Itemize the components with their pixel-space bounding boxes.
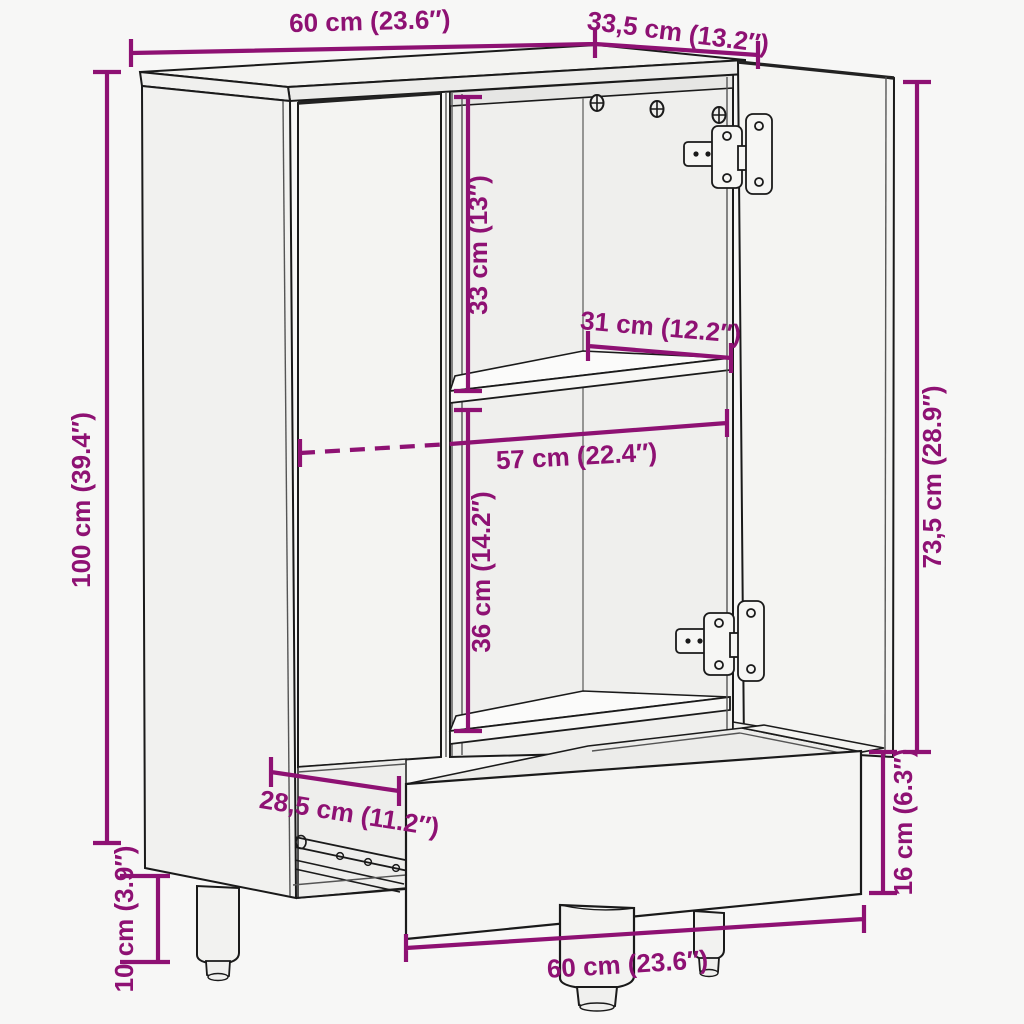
dimension-label: 100 cm (39.4″) [66, 412, 96, 588]
dimension-label: 16 cm (6.3″) [888, 749, 918, 896]
left-door [298, 92, 446, 767]
cabinet-dimension-diagram: 60 cm (23.6″) 33,5 cm (13.2″) 100 cm (39… [0, 0, 1024, 1024]
dimension-label: 73,5 cm (28.9″) [917, 385, 947, 568]
dimension-label: 36 cm (14.2″) [466, 491, 496, 652]
screw-icon [651, 101, 664, 117]
screw-icon [591, 95, 604, 111]
screw-icon [713, 107, 726, 123]
dimension-label: 33 cm (13″) [463, 175, 493, 315]
right-door-edge-thickness [885, 77, 886, 756]
cabinet-drawing [140, 45, 894, 1011]
dimension-label: 10 cm (3.9″) [109, 846, 139, 993]
dimension-label: 60 cm (23.6″) [289, 4, 451, 38]
